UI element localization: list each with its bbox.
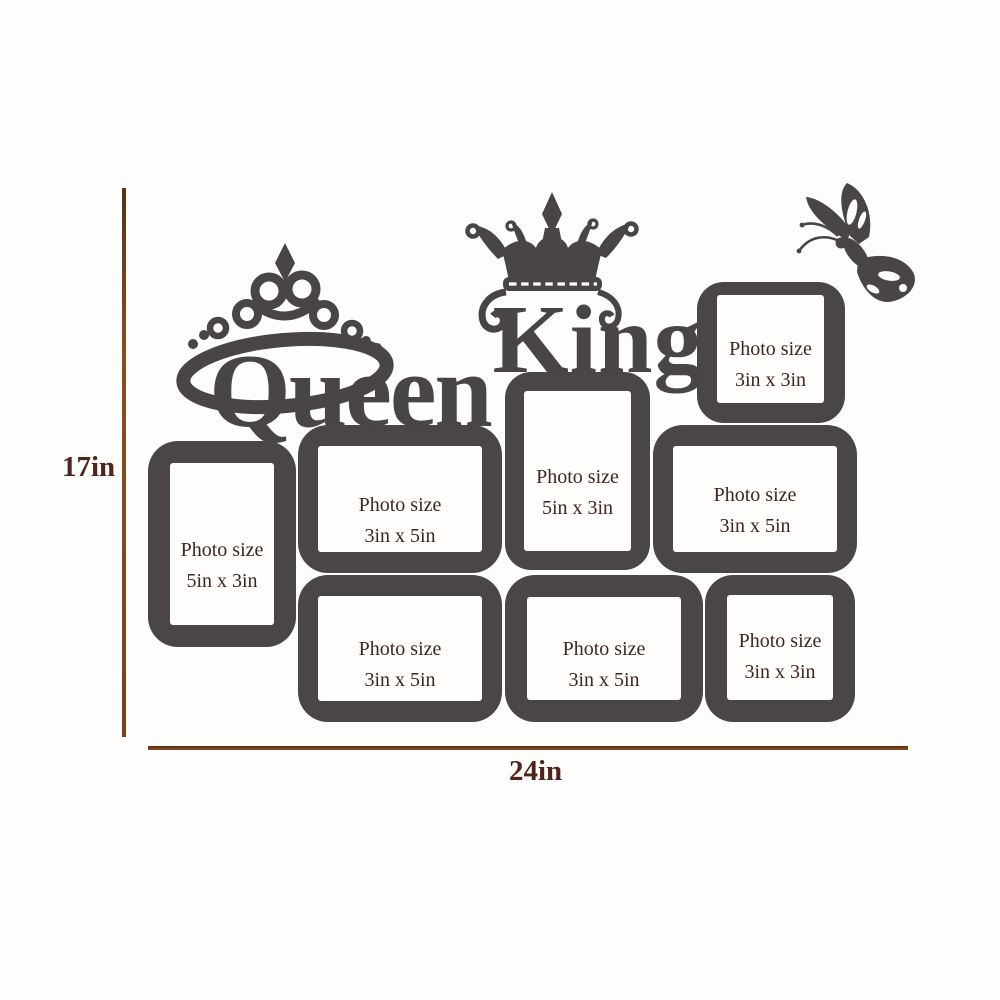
- photo-window: Photo size 5in x 3in: [170, 463, 274, 625]
- photo-frame-top-middle-landscape: Photo size 3in x 5in: [298, 425, 502, 573]
- height-dimension-label: 17in: [62, 451, 115, 484]
- photo-size-value: 3in x 5in: [563, 665, 646, 696]
- photo-window: Photo size 3in x 3in: [727, 595, 833, 700]
- tiara-icon: [181, 243, 390, 415]
- crown-icon: [468, 192, 637, 329]
- width-dimension-line: [148, 746, 908, 750]
- photo-window: Photo size 3in x 5in: [318, 446, 482, 552]
- photo-window: Photo size 3in x 5in: [318, 596, 482, 701]
- photo-size-value: 3in x 5in: [359, 665, 442, 696]
- photo-frame-bottom-left-landscape: Photo size 3in x 5in: [298, 575, 502, 722]
- photo-window: Photo size 3in x 5in: [673, 446, 837, 552]
- photo-frame-left-portrait: Photo size 5in x 3in: [148, 441, 296, 647]
- photo-size-value: 3in x 5in: [359, 521, 442, 552]
- photo-size-label: Photo size: [359, 490, 442, 521]
- photo-size-value: 3in x 5in: [714, 511, 797, 542]
- photo-size-value: 3in x 3in: [729, 365, 812, 396]
- width-dimension-label: 24in: [509, 755, 562, 788]
- photo-frame-top-right-square: Photo size 3in x 3in: [697, 282, 845, 423]
- photo-window: Photo size 3in x 5in: [527, 597, 681, 700]
- height-dimension-line: [122, 188, 126, 737]
- photo-window: Photo size 3in x 3in: [717, 295, 824, 403]
- photo-size-label: Photo size: [563, 634, 646, 665]
- photo-size-label: Photo size: [739, 626, 822, 657]
- photo-size-value: 5in x 3in: [536, 493, 619, 524]
- photo-size-value: 3in x 3in: [739, 657, 822, 688]
- photo-size-value: 5in x 3in: [181, 566, 264, 597]
- photo-frame-bottom-center-landscape: Photo size 3in x 5in: [505, 575, 703, 722]
- photo-frame-bottom-right-square: Photo size 3in x 3in: [705, 575, 855, 722]
- photo-size-label: Photo size: [181, 535, 264, 566]
- photo-window: Photo size 5in x 3in: [524, 391, 631, 551]
- photo-size-label: Photo size: [729, 334, 812, 365]
- product-diagram: 17in 24in Photo size 5in x 3in Photo siz…: [0, 0, 1000, 1000]
- photo-frame-center-portrait: Photo size 5in x 3in: [505, 372, 650, 570]
- photo-frame-middle-right-landscape: Photo size 3in x 5in: [653, 425, 857, 573]
- photo-size-label: Photo size: [359, 634, 442, 665]
- photo-size-label: Photo size: [536, 462, 619, 493]
- photo-size-label: Photo size: [714, 480, 797, 511]
